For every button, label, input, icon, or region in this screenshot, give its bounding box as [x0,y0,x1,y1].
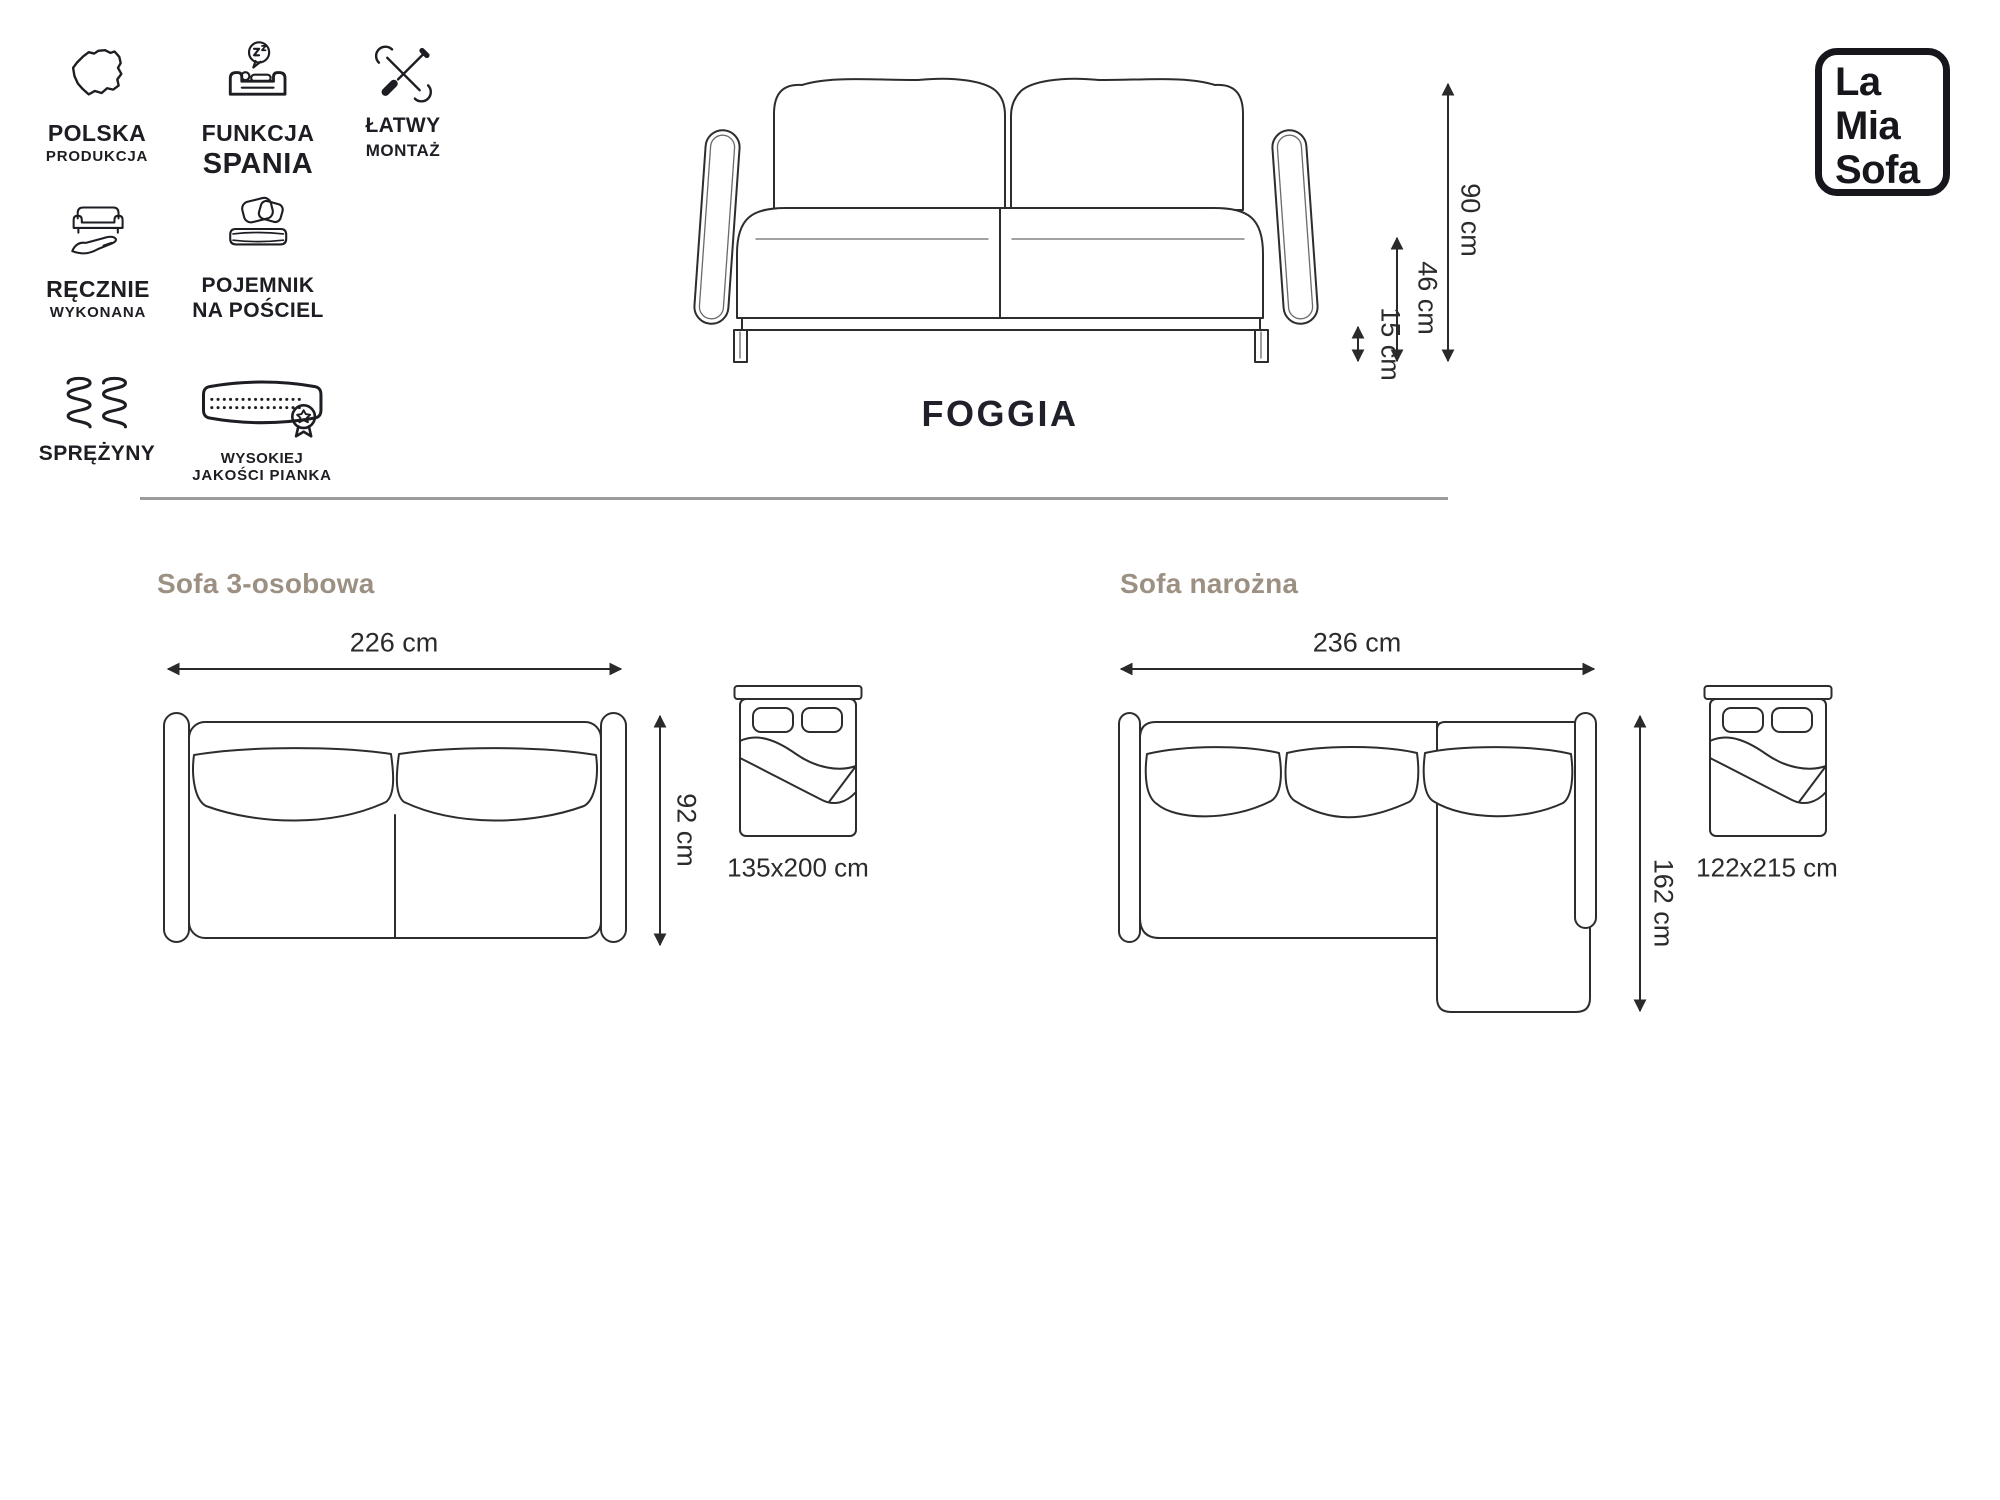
product-name: FOGGIA [850,393,1150,435]
feature-sublabel: MONTAŻ [365,140,440,161]
feature-label: SPRĘŻYNY [39,442,155,466]
feature-sublabel: NA POŚCIEL [192,298,324,324]
section-divider [140,497,1448,500]
section-title-corner: Sofa narożna [1120,568,1298,600]
sofa3-top-view-drawing [158,703,632,951]
poland-map-icon [63,42,131,110]
feature-label: WYSOKIEJ [192,450,332,467]
sleep-function-icon [222,38,294,110]
feature-sublabel: JAKOŚCI PIANKA [192,467,332,486]
feature-wysokiej-jakosci-pianka: WYSOKIEJ JAKOŚCI PIANKA [192,376,332,486]
dim-sofa3-depth: 92 cm [671,793,702,867]
spec-sheet: POLSKA PRODUKCJA FUNKCJA SPANIA ŁATWY MO… [0,0,2000,1500]
dim-corner-depth: 162 cm [1648,859,1679,948]
bed-size-icon [733,684,863,844]
brand-logo-line: Mia [1835,104,1943,148]
springs-icon [61,373,133,432]
sofa-front-view-drawing [690,58,1322,370]
handmade-icon [63,198,133,266]
brand-logo: La Mia Sofa [1815,48,1950,196]
brand-logo-line: La [1835,60,1943,104]
feature-label: POJEMNIK [192,274,324,298]
feature-polska-produkcja: POLSKA PRODUKCJA [46,42,148,167]
feature-sublabel: PRODUKCJA [46,148,148,167]
brand-logo-line: Sofa [1835,148,1943,192]
corner-sofa-top-view-drawing [1115,700,1607,1018]
feature-pojemnik-na-posciel: POJEMNIK NA POŚCIEL [192,194,324,324]
dim-corner-width: 236 cm [1313,628,1402,659]
dim-sofa3-width: 226 cm [350,628,439,659]
feature-sprezyny: SPRĘŻYNY [39,373,155,468]
feature-latwy-montaz: ŁATWY MONTAŻ [365,44,440,161]
bedding-storage-icon [221,194,295,264]
feature-label: FUNKCJA [202,120,315,146]
easy-assembly-icon [373,44,433,104]
feature-label: POLSKA [46,120,148,146]
dim-sofa3-bed-size: 135x200 cm [727,853,869,884]
dim-seat-height: 46 cm [1412,261,1443,335]
dim-legs-height: 15 cm [1375,307,1406,381]
bed-size-icon [1702,684,1834,844]
section-title-sofa3: Sofa 3-osobowa [157,568,375,600]
feature-sublabel: SPANIA [202,146,315,182]
dim-total-height: 90 cm [1455,183,1486,257]
feature-label: RĘCZNIE [46,276,150,302]
feature-label: ŁATWY [365,114,440,138]
feature-sublabel: WYKONANA [46,304,150,323]
feature-funkcja-spania: FUNKCJA SPANIA [202,38,315,183]
foam-quality-icon [198,376,326,440]
dim-corner-bed-size: 122x215 cm [1696,853,1838,884]
feature-recznie-wykonana: RĘCZNIE WYKONANA [46,198,150,323]
